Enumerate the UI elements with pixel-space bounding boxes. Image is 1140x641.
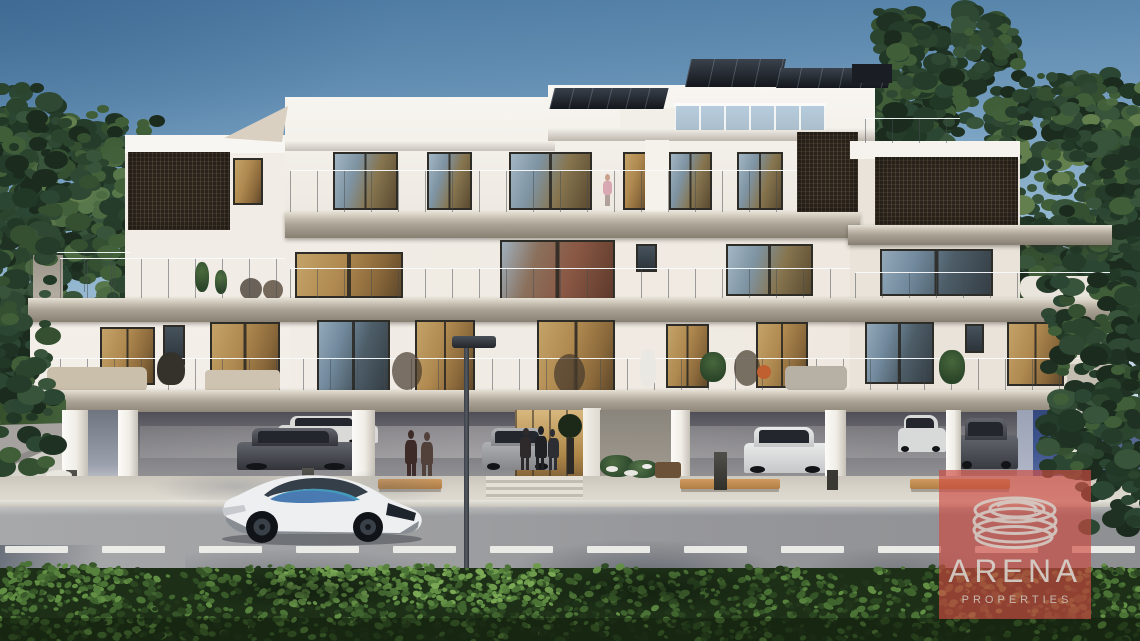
svg-text:PROPERTIES: PROPERTIES (962, 594, 1073, 606)
svg-text:ARENA: ARENA (948, 553, 1081, 589)
